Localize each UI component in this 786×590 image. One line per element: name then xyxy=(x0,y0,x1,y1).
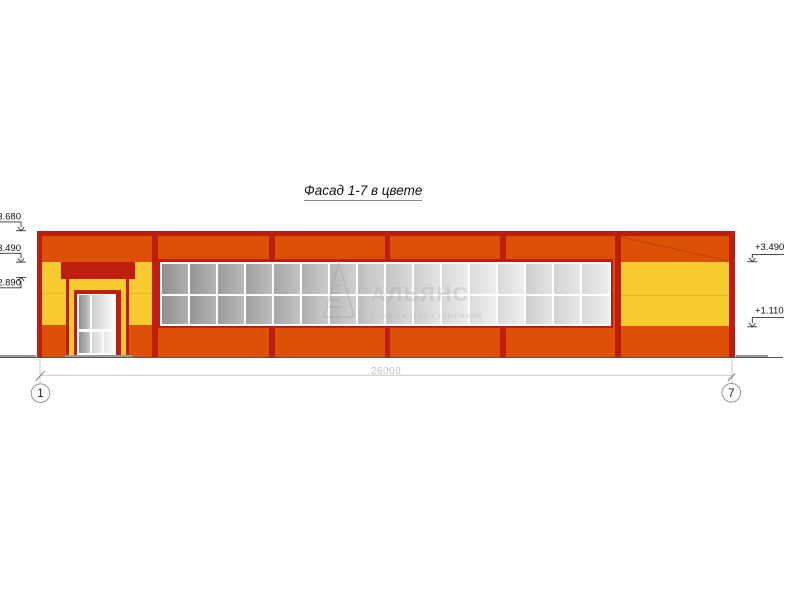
svg-text:+3.680: +3.680 xyxy=(0,212,21,223)
svg-text:26000: 26000 xyxy=(371,366,401,377)
svg-text:1: 1 xyxy=(37,388,43,400)
svg-text:7: 7 xyxy=(728,388,734,400)
svg-text:+2.890: +2.890 xyxy=(0,277,21,288)
svg-text:+3.490: +3.490 xyxy=(0,243,21,254)
svg-text:+3.490: +3.490 xyxy=(755,242,784,253)
svg-text:+1.110: +1.110 xyxy=(755,305,784,316)
